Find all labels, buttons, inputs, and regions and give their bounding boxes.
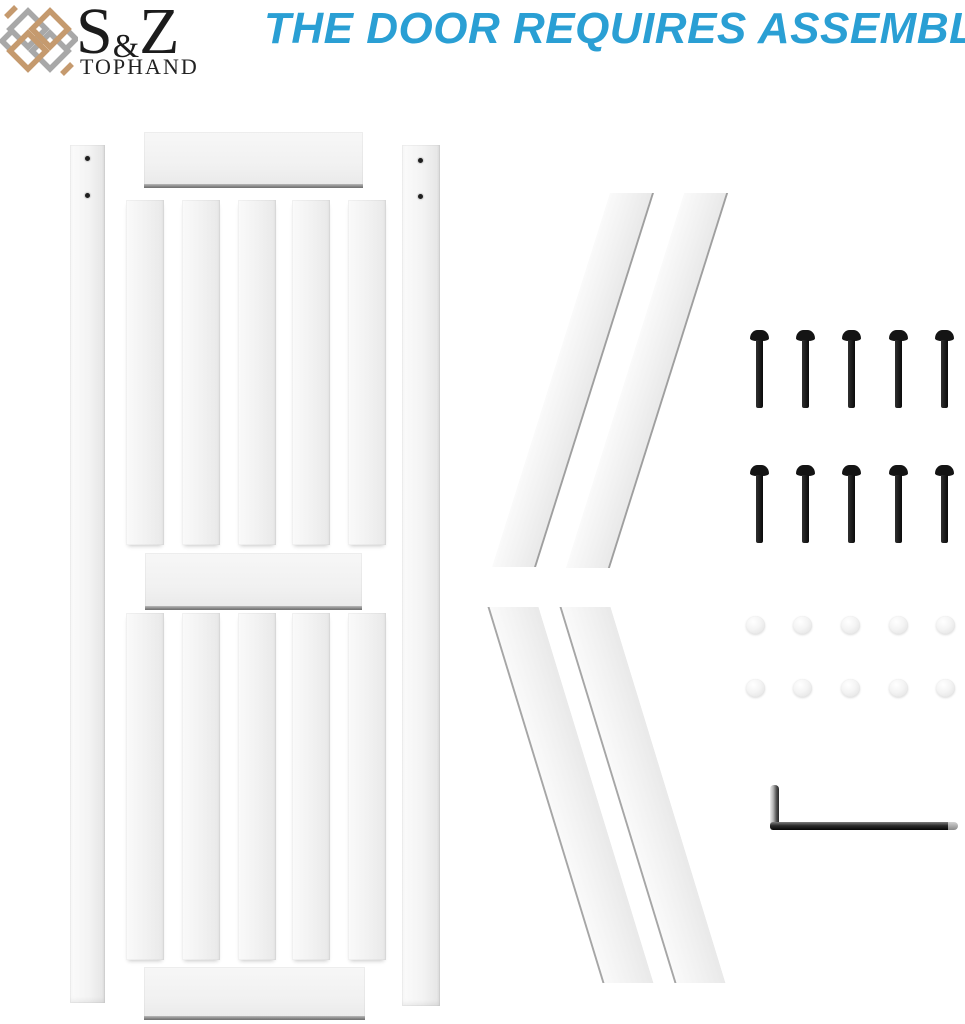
wrench-long-arm xyxy=(770,822,956,830)
door-slat-upper-2 xyxy=(182,200,220,545)
hex-bolt xyxy=(796,330,815,408)
hex-bolt xyxy=(889,465,908,543)
screw-cap xyxy=(936,616,955,634)
door-slat-lower-1 xyxy=(126,613,164,960)
bolt-shaft xyxy=(802,475,809,543)
bolt-shaft xyxy=(941,475,948,543)
door-rail-bottom xyxy=(144,967,365,1020)
door-slat-lower-5 xyxy=(348,613,386,960)
rail-shadow-edge xyxy=(145,606,362,610)
door-slat-upper-5 xyxy=(348,200,386,545)
hex-bolt xyxy=(750,330,769,408)
wrench-short-arm xyxy=(770,785,779,827)
bolt-shaft xyxy=(756,475,763,543)
hex-bolt xyxy=(935,465,954,543)
door-rail-middle xyxy=(145,553,362,610)
screw-cap xyxy=(746,679,765,697)
bolt-shaft xyxy=(895,475,902,543)
brand-subtitle: TOPHAND xyxy=(80,56,199,78)
bolt-shaft xyxy=(756,340,763,408)
hex-bolt xyxy=(750,465,769,543)
hex-bolt xyxy=(796,465,815,543)
bolt-shaft xyxy=(848,340,855,408)
door-stile-right xyxy=(402,145,440,1006)
allen-wrench-icon xyxy=(768,785,958,832)
bolt-shaft xyxy=(895,340,902,408)
bolt-shaft xyxy=(941,340,948,408)
door-stile-left xyxy=(70,145,105,1003)
screw-hole xyxy=(85,156,90,161)
screw-cap xyxy=(793,679,812,697)
rail-shadow-edge xyxy=(144,184,363,188)
door-rail-top xyxy=(144,132,363,188)
door-slat-lower-2 xyxy=(182,613,220,960)
hex-bolt xyxy=(842,330,861,408)
rail-shadow-edge xyxy=(144,1016,365,1020)
page-title: THE DOOR REQUIRES ASSEMBLY xyxy=(264,9,965,49)
door-slat-upper-1 xyxy=(126,200,164,545)
screw-cap xyxy=(746,616,765,634)
hex-bolt xyxy=(842,465,861,543)
screw-cap xyxy=(889,679,908,697)
bolt-shaft xyxy=(848,475,855,543)
bolt-shaft xyxy=(802,340,809,408)
screw-hole xyxy=(418,158,423,163)
lattice-logo-icon xyxy=(0,3,78,78)
door-slat-upper-4 xyxy=(292,200,330,545)
screw-hole xyxy=(85,193,90,198)
door-slat-upper-3 xyxy=(238,200,276,545)
screw-cap xyxy=(936,679,955,697)
screw-cap xyxy=(841,616,860,634)
screw-hole xyxy=(418,194,423,199)
hex-bolt xyxy=(889,330,908,408)
wrench-tip xyxy=(948,822,958,830)
door-slat-lower-3 xyxy=(238,613,276,960)
hex-bolt xyxy=(935,330,954,408)
screw-cap xyxy=(841,679,860,697)
screw-cap xyxy=(793,616,812,634)
door-slat-lower-4 xyxy=(292,613,330,960)
screw-cap xyxy=(889,616,908,634)
product-image: S&Z TOPHAND THE DOOR REQUIRES ASSEMBLY xyxy=(0,0,965,1024)
